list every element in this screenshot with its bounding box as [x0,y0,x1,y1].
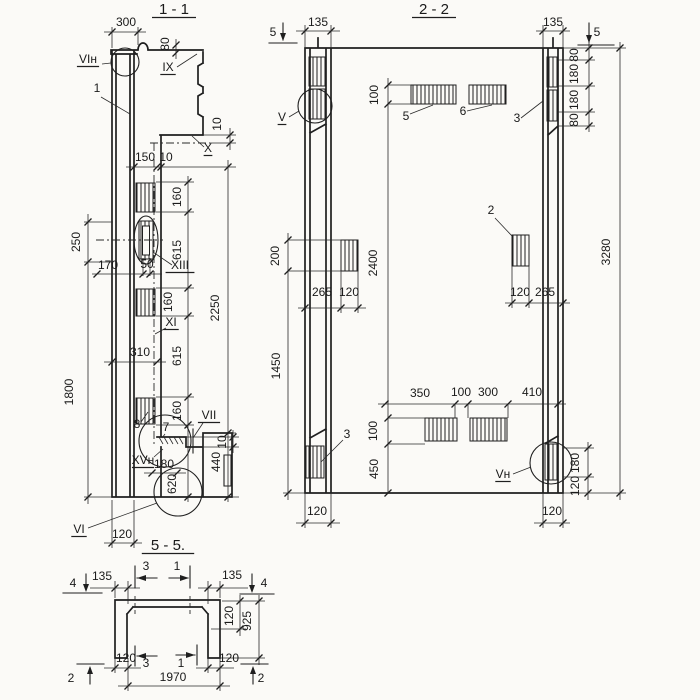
leader-2: 2 [488,203,495,217]
dim-180-tr-b: 180 [567,90,581,110]
dim-120-leg-r: 120 [219,651,239,665]
label-XIII: XIII [171,258,189,272]
dim-120-bl-base: 120 [307,504,327,518]
dim-100-bh: 100 [451,385,471,399]
dim-135-55r: 135 [222,568,242,582]
leader-5: 5 [403,109,410,123]
dim-135-right: 135 [543,15,563,29]
marker-2-right: 2 [258,671,265,685]
dim-170: 170 [98,258,118,272]
title-section-5-5: 5 - 5. [151,537,185,554]
dim-615-b: 615 [170,346,184,366]
dim-2400: 2400 [366,249,380,276]
embed-plate [470,418,507,441]
dim-615-a: 615 [170,240,184,260]
leader-6: 6 [460,104,467,118]
dim-120-rm: 120 [510,285,530,299]
dim-300-top: 300 [116,15,136,29]
label-V: V [278,110,286,124]
embed-plate-6 [469,85,506,104]
dim-300-b: 300 [478,385,498,399]
dim-150: 150 [135,150,155,164]
dim-620: 620 [165,474,179,494]
engineering-drawing-sheet: 1 - 130080VIн1IX10X150101606151606151606… [0,0,700,700]
dim-120-leg-l: 120 [116,651,136,665]
marker-1-top: 1 [174,559,181,573]
dim-10-step: 10 [210,117,224,131]
dim-160-a: 160 [170,187,184,207]
marker-4-right: 4 [261,576,268,590]
rib-embed [545,444,558,480]
label-Vn: Vн [496,467,511,481]
dim-80-tr-a: 80 [567,48,581,62]
dim-135-55l: 135 [92,569,112,583]
rib-embed-3 [547,90,558,121]
title-section-2-2: 2 - 2 [419,1,449,18]
dim-120-base-11: 120 [112,527,132,541]
marker-4-left: 4 [70,576,77,590]
marker-3-bottom: 3 [143,656,150,670]
dim-265-lm: 265 [312,285,332,299]
embed-plate [136,183,155,212]
dim-250: 250 [69,232,83,252]
dim-100-bv: 100 [366,421,380,441]
label-VIn: VIн [79,52,97,66]
leader-7: 7 [163,420,170,434]
dim-180-tr-a: 180 [567,64,581,84]
dim-925: 925 [240,611,254,631]
label-VI: VI [73,522,84,536]
dim-100-top: 100 [367,85,381,105]
marker-3-top: 3 [143,559,150,573]
leader-3-top: 3 [514,111,521,125]
dim-350: 350 [410,386,430,400]
dim-2250: 2250 [208,294,222,321]
label-XI: XI [165,315,176,329]
dim-180-foot: 180 [154,457,174,471]
dim-440: 440 [209,452,223,472]
leader-3-bottom: 3 [344,427,351,441]
dim-3280: 3280 [599,238,613,265]
dim-410: 410 [522,385,542,399]
rib-embed [309,57,326,86]
marker-5-right: 5 [594,25,601,39]
dim-180-br: 180 [568,453,582,473]
dim-135-left: 135 [308,15,328,29]
leader-8: 8 [134,417,141,431]
dim-1800: 1800 [62,378,76,405]
label-X: X [204,141,212,155]
dim-80-top: 80 [158,37,172,51]
dim-120-br: 120 [568,476,582,496]
label-XVn: XVн [132,453,155,467]
dim-120-br-base: 120 [542,504,562,518]
marker-1-bottom: 1 [178,656,185,670]
dim-160-b: 160 [161,292,175,312]
dim-310: 310 [130,345,150,359]
dim-200: 200 [268,246,282,266]
anchor-core [143,226,150,255]
embed-plate [136,289,155,316]
dim-160-c: 160 [170,401,184,421]
dim-80-tr-b: 80 [567,113,581,127]
dim-10-shelf: 10 [215,435,229,449]
paper-background [0,0,700,700]
embed-plate [425,418,457,441]
leader-1: 1 [94,81,101,95]
dim-265-rm: 265 [535,285,555,299]
panel-sections-drawing: 1 - 130080VIн1IX10X150101606151606151606… [0,0,700,700]
dim-1970: 1970 [160,670,187,684]
dim-450: 450 [367,459,381,479]
embed-plate-2 [512,235,529,266]
dim-1450: 1450 [269,352,283,379]
dim-120-lm: 120 [339,285,359,299]
dim-10-gap: 10 [159,150,173,164]
rib-embed [309,89,326,119]
embed-plate-5 [411,85,456,104]
embed-plate [341,240,358,271]
dim-50: 50 [140,257,154,271]
marker-2-left: 2 [68,671,75,685]
dim-120-flange: 120 [222,606,236,626]
rib-embed [547,57,558,87]
label-VII: VII [202,408,217,422]
title-section-1-1: 1 - 1 [159,1,189,18]
label-IX: IX [162,60,173,74]
marker-5-left: 5 [270,25,277,39]
